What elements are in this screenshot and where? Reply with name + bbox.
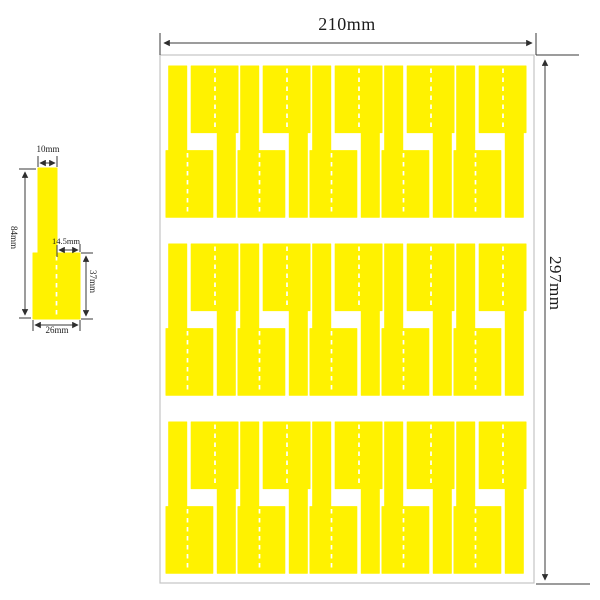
label-sheet-diagram: 210mm 297mm 10mm 84mm 14.5mm 37mm 26mm: [0, 0, 600, 600]
total-height-dimension-label: 84mm: [9, 226, 18, 249]
strip-width-dimension-label: 10mm: [28, 145, 68, 154]
sheet-height-dimension-label: 297mm: [547, 256, 564, 310]
a4-sheet-outline: [160, 55, 534, 583]
flag-height-dimension-label: 37mm: [88, 270, 97, 293]
diagram-scene: [0, 0, 600, 600]
tail-width-dimension-label: 14.5mm: [46, 237, 86, 246]
sheet-width-dimension-label: 210mm: [160, 15, 534, 33]
base-width-dimension-label: 26mm: [37, 326, 77, 335]
